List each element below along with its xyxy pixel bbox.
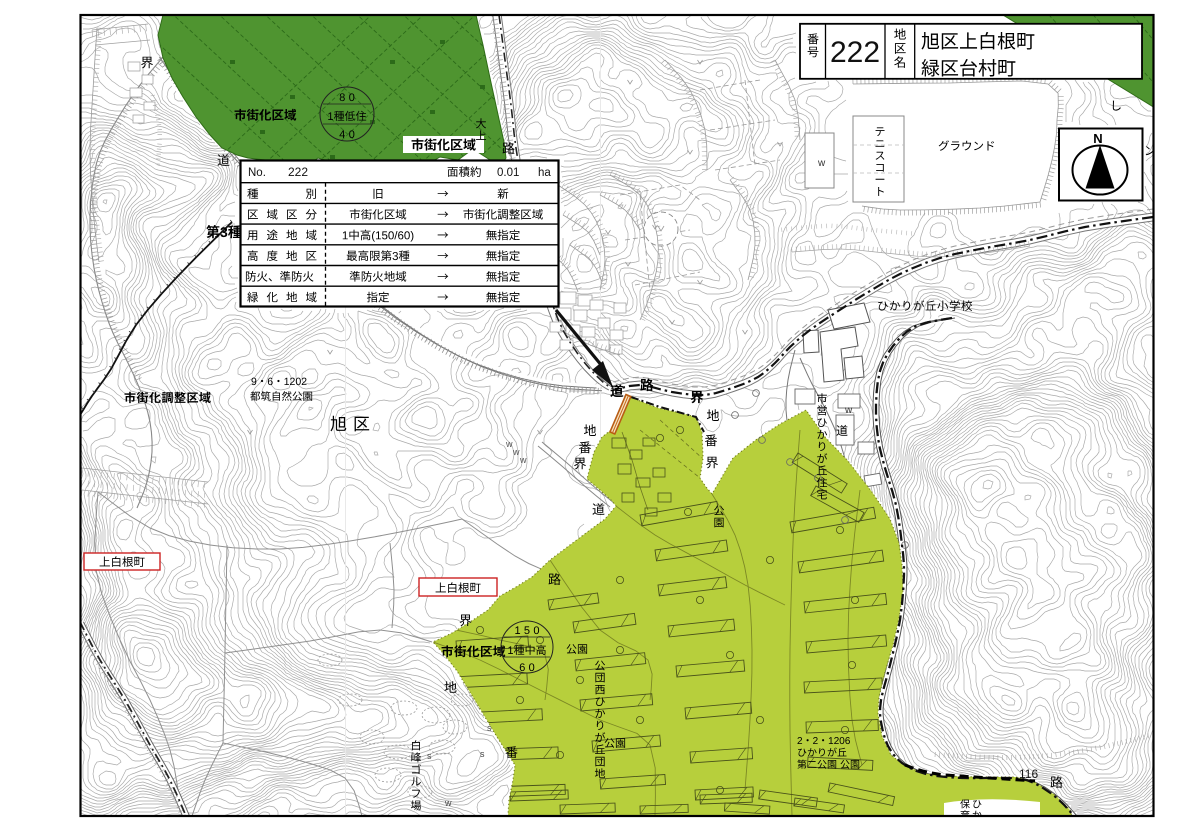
svg-text:ha: ha <box>538 167 551 179</box>
svg-text:s: s <box>480 749 485 759</box>
svg-text:s: s <box>487 723 492 733</box>
svg-text:222: 222 <box>288 165 308 179</box>
svg-text:s: s <box>427 751 432 761</box>
svg-text:w: w <box>512 447 520 457</box>
svg-text:N: N <box>1093 131 1102 146</box>
svg-text:w: w <box>505 439 513 449</box>
svg-text:w: w <box>444 798 452 808</box>
svg-text:222: 222 <box>830 36 880 69</box>
svg-text:w: w <box>844 405 853 416</box>
svg-text:No.: No. <box>248 167 266 179</box>
svg-text:0.01: 0.01 <box>497 167 519 179</box>
svg-text:w: w <box>519 455 527 465</box>
svg-text:w: w <box>817 158 826 169</box>
svg-text:116: 116 <box>1019 767 1038 781</box>
